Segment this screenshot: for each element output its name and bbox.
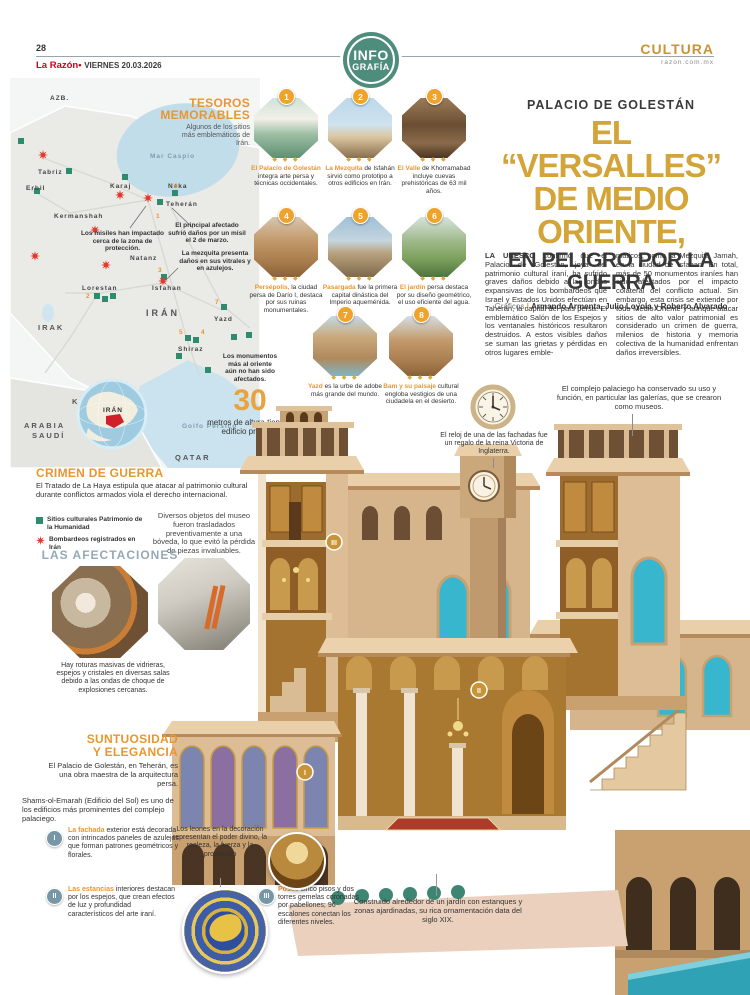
item-II-circle: II <box>46 888 63 905</box>
tesoro-num-6: 6 <box>426 207 443 224</box>
tesoro-lead-8: Bam y su paisaje <box>383 383 436 390</box>
bomb-burst-icon <box>36 536 45 545</box>
tesoros-intro: Algunos de los sitios más emblemáticos d… <box>178 124 250 149</box>
map-callout-principal: El principal afectado sufrió daños por u… <box>168 222 246 245</box>
photo-salon-espejos <box>52 566 148 658</box>
palace-marker-II-label: II <box>477 688 481 695</box>
tesoro-num-4: 4 <box>278 207 295 224</box>
headline-line-1: EL “VERSALLES” <box>483 116 739 182</box>
photo-jardin <box>402 217 466 277</box>
palace-carpet <box>386 818 500 830</box>
tesoros-heading-2: MEMORABLES <box>150 109 250 121</box>
ornament-2: ◆ ◆ ◆ <box>344 156 376 163</box>
brand-logo[interactable]: La Razón <box>36 60 78 71</box>
label-isfahan: Isfahan <box>152 285 182 292</box>
tesoro-text-1: integra arte persa y técnicas occidental… <box>254 173 318 188</box>
tesoro-num-5: 5 <box>352 207 369 224</box>
label-azb: AZB. <box>50 95 69 102</box>
label-yazd: Yazd <box>214 316 233 323</box>
legend-sitios: Sitios culturales Patrimonio de la Human… <box>36 516 148 531</box>
tesoro-caption-5: Pasargada fue la primera capital dinásti… <box>322 284 398 307</box>
label-lorestan: Lorestan <box>82 285 117 292</box>
afectaciones-caption: Hay roturas masivas de vidrieras, espejo… <box>52 662 174 695</box>
brand-bullet: • <box>78 60 81 71</box>
ornament-7: ◆ ◆ ◆ <box>329 374 361 381</box>
ornament-1: ◆ ◆ ◆ <box>270 156 302 163</box>
item-II-lead: Las estancias <box>68 886 114 893</box>
tesoro-caption-2: La Mezquita de Isfahán sirvió como proto… <box>322 165 398 188</box>
site-num-5: 5 <box>179 329 183 336</box>
legend-sitios-label: Sitios culturales Patrimonio de la Human… <box>47 516 148 531</box>
item-I-lead: La fachada <box>68 827 105 834</box>
headline-line-2: DE MEDIO ORIENTE, <box>483 182 739 248</box>
photo-bam <box>389 316 453 376</box>
label-neka: Neka <box>168 183 188 190</box>
reloj-pointer-line <box>493 458 494 468</box>
article-body: LA UNESCO confirmó que el Palacio de Gol… <box>485 252 739 358</box>
tesoro-caption-6: El jardín persa destaca por su diseño ge… <box>396 284 472 307</box>
label-tabriz: Tabriz <box>38 169 63 176</box>
photo-mezquita <box>328 98 392 158</box>
galerias-pointer-line <box>632 414 633 436</box>
label-natanz: Natanz <box>130 255 157 262</box>
article-lead: LA UNESCO <box>485 251 535 260</box>
photo-yazd <box>313 316 377 376</box>
site-num-7: 7 <box>215 299 219 306</box>
photo-valle <box>402 98 466 158</box>
tesoro-num-2: 2 <box>352 88 369 105</box>
section-title[interactable]: CULTURA <box>594 41 714 57</box>
heritage-square-icon <box>36 517 43 524</box>
tesoro-lead-6: El jardín <box>400 284 426 291</box>
jardin-pointer-line <box>436 874 437 896</box>
callout-jardin: Construido alrededor de un jardín con es… <box>352 898 524 924</box>
item-I-text: La fachada exterior está decorada con in… <box>68 827 180 860</box>
suntuosidad-intro: El Palacio de Golestán, en Teherán, es u… <box>48 762 178 788</box>
label-karaj: Karaj <box>110 183 131 190</box>
article-col-2: máticos, como la Mezquita Jamah, en la c… <box>616 252 738 358</box>
tesoro-num-1: 1 <box>278 88 295 105</box>
tesoro-caption-4: Persépolis, la ciudad persa de Darío I, … <box>248 284 324 314</box>
tesoro-caption-1: El Palacio de Golestán integra arte pers… <box>248 165 324 188</box>
palace-marker-III-label: III <box>331 540 337 547</box>
label-iran: IRÁN <box>146 308 180 318</box>
suntuosidad-heading: SUNTUOSIDAD Y ELEGANCIA <box>60 733 178 759</box>
tesoro-caption-3: El Valle de Khorramabad incluye cuevas p… <box>396 165 472 195</box>
label-erbil: Erbil <box>26 185 45 192</box>
tesoros-heading: TESOROS MEMORABLES <box>150 97 250 121</box>
palace-right-tower <box>546 424 690 710</box>
ornament-3: ◆ ◆ ◆ <box>418 156 450 163</box>
site-url[interactable]: razon.com.mx <box>594 59 714 66</box>
tesoro-lead-4: Persépolis, <box>255 284 290 291</box>
ornament-8: ◆ ◆ ◆ <box>405 374 437 381</box>
tesoro-lead-7: Yazd <box>308 383 323 390</box>
crimen-heading: CRIMEN DE GUERRA <box>36 466 163 480</box>
headline-kicker: PALACIO DE GOLESTÁN <box>483 98 739 112</box>
tesoro-lead-2: La Mezquita <box>325 165 362 172</box>
masthead: La Razón• VIERNES 20.03.2026 <box>36 60 162 71</box>
lion-plate-photo <box>182 888 268 974</box>
tesoro-lead-1: El Palacio de Golestán <box>251 165 321 172</box>
lake <box>42 304 54 322</box>
site-num-2: 2 <box>86 293 90 300</box>
callout-reloj: El reloj de una de las fachadas fue un r… <box>438 432 550 457</box>
infografia-badge: INFO GRAFÍA <box>343 32 399 88</box>
photo-persepolis <box>254 217 318 277</box>
ornament-6: ◆ ◆ ◆ <box>418 275 450 282</box>
site-num-3: 3 <box>158 267 162 274</box>
label-arabia-1: ARABIA <box>24 421 65 430</box>
page-number: 28 <box>36 43 46 53</box>
label-kermanshah: Kermanshah <box>54 213 103 220</box>
tesoro-num-8: 8 <box>413 306 430 323</box>
item-III-circle: III <box>258 888 275 905</box>
tesoro-lead-5: Pasargada <box>323 284 356 291</box>
lion-motif <box>206 911 244 943</box>
newspaper-page: 28 La Razón• VIERNES 20.03.2026 CULTURA … <box>0 0 750 995</box>
ornament-5: ◆ ◆ ◆ <box>344 275 376 282</box>
item-I-circle: I <box>46 830 63 847</box>
globe-inset: IRÁN <box>78 380 146 448</box>
label-irak: IRAK <box>38 323 64 332</box>
ornament-4: ◆ ◆ ◆ <box>270 275 302 282</box>
photo-pasargada <box>328 217 392 277</box>
palace-marker-I-label: I <box>304 770 306 777</box>
leones-pointer-line <box>220 878 221 887</box>
suntuosidad-para: Shams-ol-Emarah (Edificio del Sol) es un… <box>22 797 180 823</box>
site-num-1: 1 <box>156 213 160 220</box>
article-col1-text: confirmó que el Palacio de Golestán, joy… <box>485 251 607 357</box>
label-shiraz: Shiraz <box>178 346 204 353</box>
map-callout-oriente: Los monumentos más al oriente aún no han… <box>222 353 278 383</box>
globe-label: IRÁN <box>103 405 123 414</box>
label-caspio: Mar Caspio <box>150 153 195 160</box>
interior-circle-photo <box>268 832 326 890</box>
photo-palacio-golestan <box>254 98 318 158</box>
item-II-text: Las estancias interiores destacan por lo… <box>68 886 176 919</box>
tesoro-lead-3: El Valle <box>397 165 420 172</box>
edition-date: VIERNES 20.03.2026 <box>84 61 161 70</box>
callout-leones: Los leones en la decoración representan … <box>172 826 268 859</box>
label-teheran: Teherán <box>166 201 198 208</box>
palace-main-hall <box>318 638 578 830</box>
suntuosidad-heading-2: Y ELEGANCIA <box>60 746 178 759</box>
map-callout-misiles: Los misiles han impactado cerca de la zo… <box>75 230 170 253</box>
callout-galerias: El complejo palaciego ha conservado su u… <box>548 385 730 411</box>
victoria-clock-graphic <box>470 384 516 430</box>
badge-ring <box>347 36 395 84</box>
label-arabia-2: SAUDÍ <box>32 431 65 440</box>
article-col-1: LA UNESCO confirmó que el Palacio de Gol… <box>485 252 607 358</box>
tesoro-num-7: 7 <box>337 306 354 323</box>
site-num-6: 6 <box>174 183 178 190</box>
site-num-4: 4 <box>201 329 205 336</box>
map-callout-mezquita: La mezquita presenta daños en sus vitral… <box>178 250 252 273</box>
tesoro-num-3: 3 <box>426 88 443 105</box>
